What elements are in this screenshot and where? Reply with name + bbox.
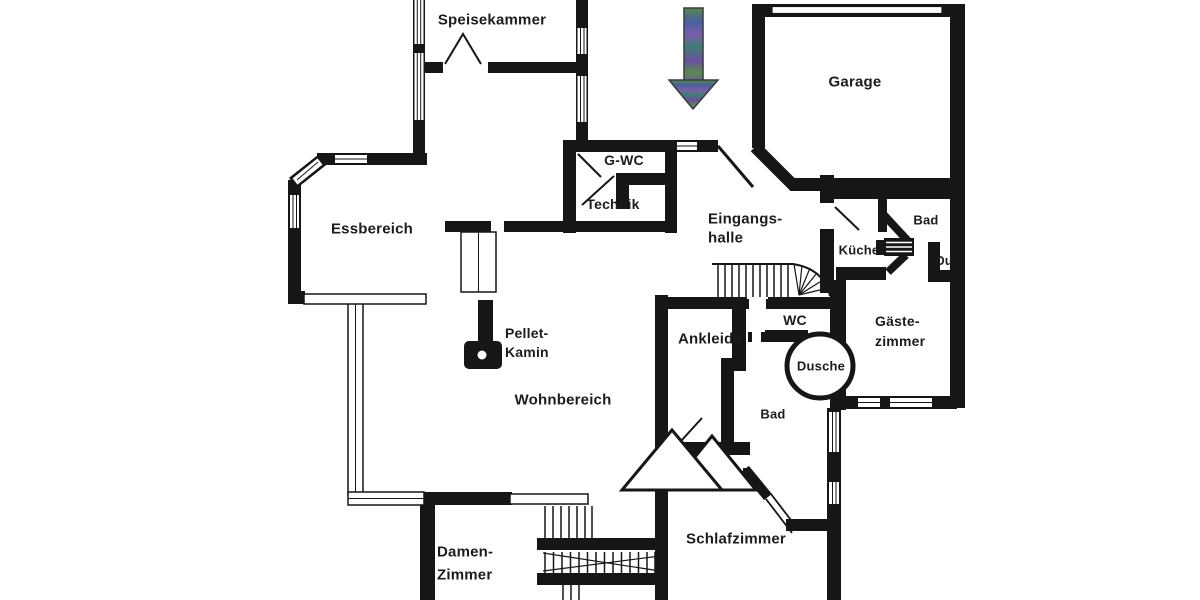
room-label-damenzimmer-line2: Zimmer	[437, 567, 492, 584]
room-label-garage: Garage	[829, 74, 882, 91]
room-label-bad-lower: Bad	[760, 407, 785, 422]
chevron-opening	[622, 430, 756, 490]
room-label-essbereich: Essbereich	[331, 221, 413, 238]
room-label-kueche: Küche	[839, 243, 880, 258]
room-label-gaestezimmer-line1: Gäste-	[875, 313, 920, 329]
room-label-eingangshalle-line2: halle	[708, 230, 743, 247]
stairs-upper	[712, 264, 830, 297]
room-label-gaestezimmer-line2: zimmer	[875, 333, 925, 349]
room-label-wc: WC	[783, 312, 807, 328]
room-label-pellet-line2: Kamin	[505, 344, 549, 360]
floorplan: Speisekammer Garage G-WC Technik Essbere…	[0, 0, 1200, 600]
room-label-wohnbereich: Wohnbereich	[515, 392, 612, 409]
room-label-pellet-line1: Pellet-	[505, 325, 548, 341]
room-label-eingangshalle-line1: Eingangs-	[708, 211, 782, 228]
entrance-arrow-icon	[669, 8, 718, 109]
pellet-stove-icon	[464, 300, 502, 369]
room-label-damenzimmer-line1: Damen-	[437, 544, 493, 561]
room-label-speisekammer: Speisekammer	[438, 12, 546, 29]
floorplan-drawing	[0, 0, 1200, 600]
room-label-technik: Technik	[586, 196, 639, 212]
room-label-dusche: Dusche	[797, 359, 845, 374]
room-label-du: Du.	[936, 254, 957, 268]
room-label-ankleide: Ankleide	[678, 331, 742, 348]
room-label-schlafzimmer: Schlafzimmer	[686, 531, 786, 548]
room-label-bad-upper: Bad	[913, 213, 938, 228]
kitchen-counter-icon	[876, 238, 914, 256]
room-label-gwc: G-WC	[604, 152, 644, 168]
stairs-lower	[543, 506, 660, 600]
doors-layer	[445, 34, 859, 475]
